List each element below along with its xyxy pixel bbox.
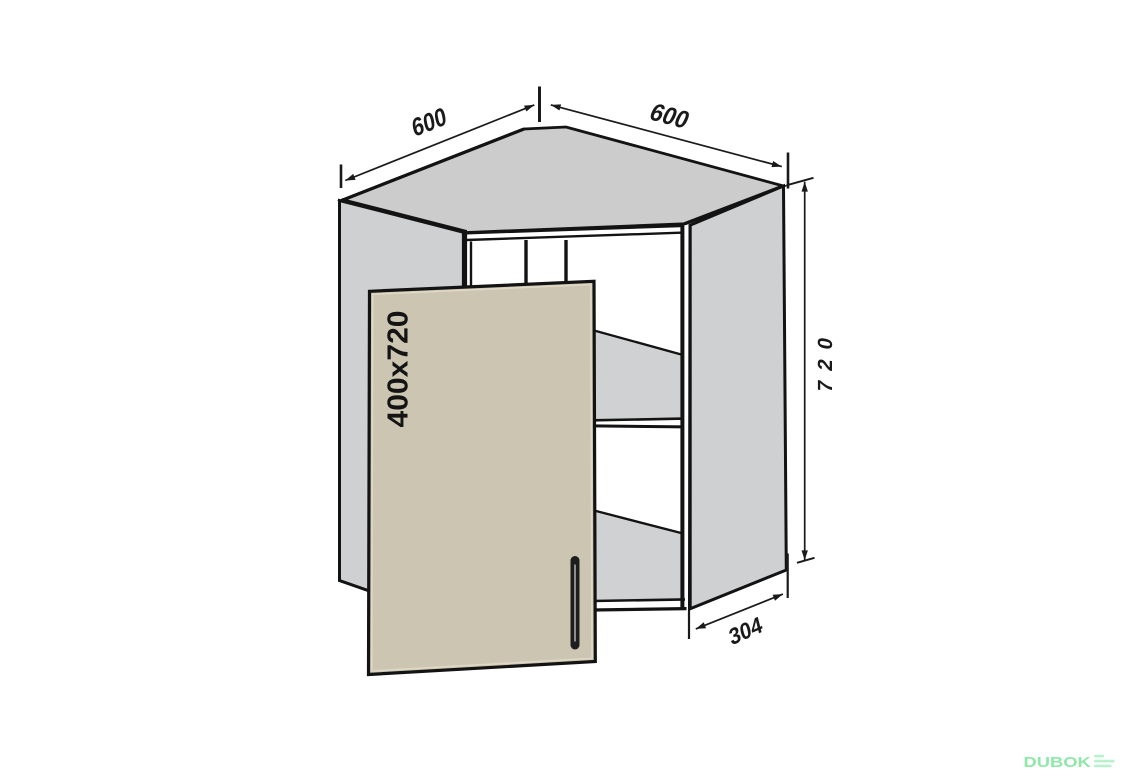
svg-text:400x720: 400x720 [383, 311, 415, 428]
svg-text:DUBOK: DUBOK [1024, 755, 1092, 771]
svg-text:720: 720 [814, 336, 837, 394]
